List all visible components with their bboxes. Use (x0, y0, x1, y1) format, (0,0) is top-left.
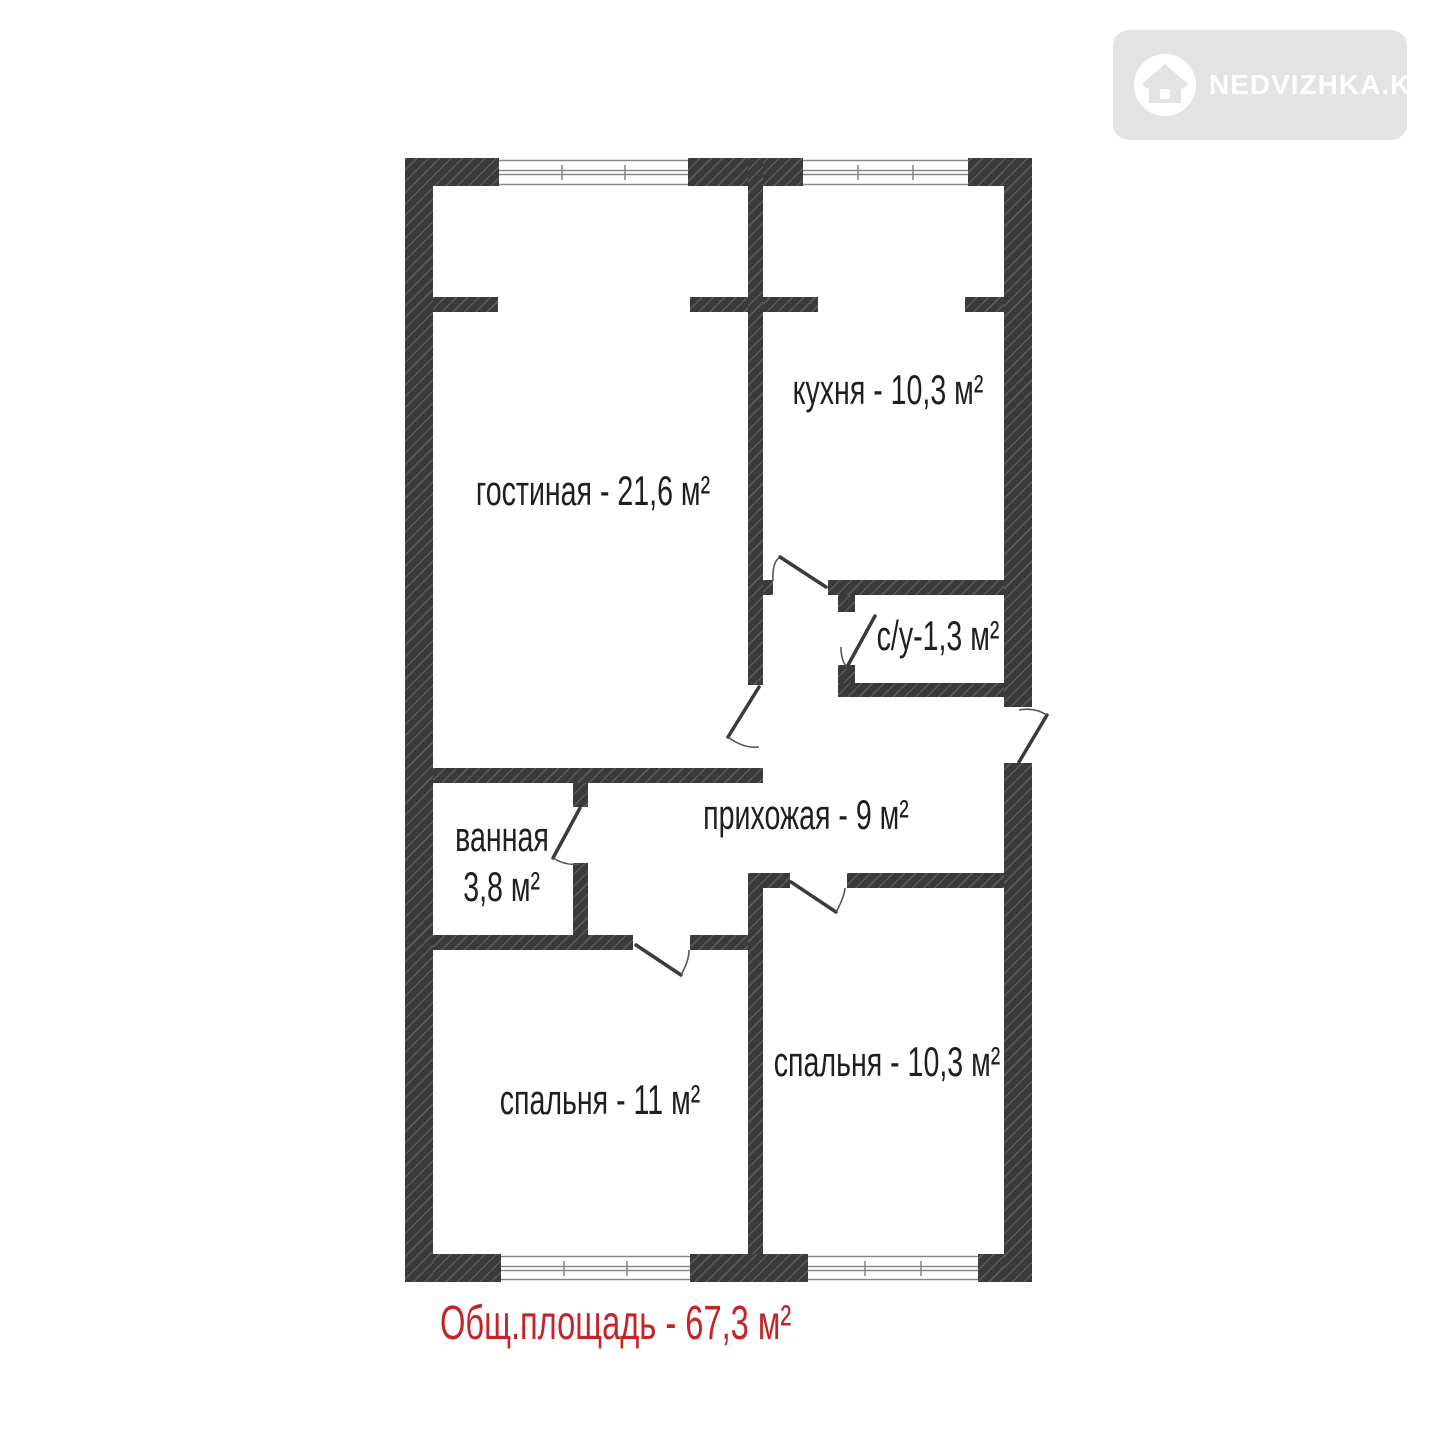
total-area-label: Общ.площадь - 67,3 м² (440, 1296, 957, 1351)
wall-living-kitchen-divider (748, 158, 763, 685)
wall-kitchen-bottom (828, 580, 1004, 595)
wall-living-bottom (433, 768, 763, 783)
bedroom2-door (791, 882, 845, 912)
doors-windows-overlay (0, 0, 1440, 1440)
window-bedroom2 (808, 1254, 978, 1282)
wall-bathroom-right-upper (573, 783, 588, 807)
bedroom2-label: спальня - 10,3 м² (720, 1038, 1053, 1086)
wall-bedroom2-top-left (748, 873, 790, 888)
wall-bedroom2-top-right (847, 873, 1004, 888)
nedvizhka-logo: NEDVIZHKA.KZ (1113, 30, 1407, 140)
living-room-door (728, 687, 759, 747)
window-living (499, 158, 688, 186)
balcony-stub-right (965, 297, 1004, 312)
bedroom1-label: спальня - 11 м² (453, 1076, 748, 1124)
bedroom1-door (636, 945, 689, 975)
kitchen-door-stub (763, 580, 773, 595)
entrance-opening (1004, 707, 1032, 763)
wall-wc-bottom (838, 683, 1004, 697)
kitchen-door (773, 557, 826, 587)
floor-plan-page: NEDVIZHKA.KZ (0, 0, 1440, 1440)
window-kitchen (803, 158, 968, 186)
wall-wc-left-upper (838, 595, 855, 612)
wall-outer-left (405, 158, 433, 1282)
window-bedroom1 (501, 1254, 690, 1282)
wall-bathroom-bottom (433, 935, 633, 950)
bathroom-label: ванная 3,8 м² (433, 812, 571, 912)
balcony-stub-left (433, 297, 498, 312)
house-icon (1133, 53, 1197, 117)
hallway-label: прихожая - 9 м² (655, 791, 957, 839)
logo-brand-text: NEDVIZHKA.KZ (1209, 69, 1429, 101)
living-room-label: гостиная - 21,6 м² (421, 467, 765, 515)
kitchen-label: кухня - 10,3 м² (748, 366, 1028, 414)
toilet-label: с/у-1,3 м² (848, 612, 1029, 660)
